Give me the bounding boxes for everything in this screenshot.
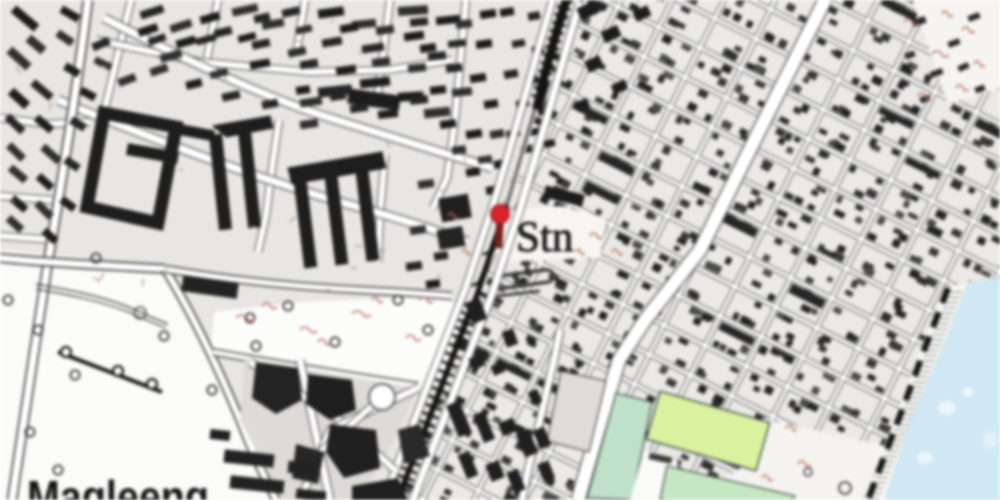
svg-text:Magleeng: Magleeng — [27, 471, 209, 500]
svg-text:Stn: Stn — [516, 214, 573, 261]
